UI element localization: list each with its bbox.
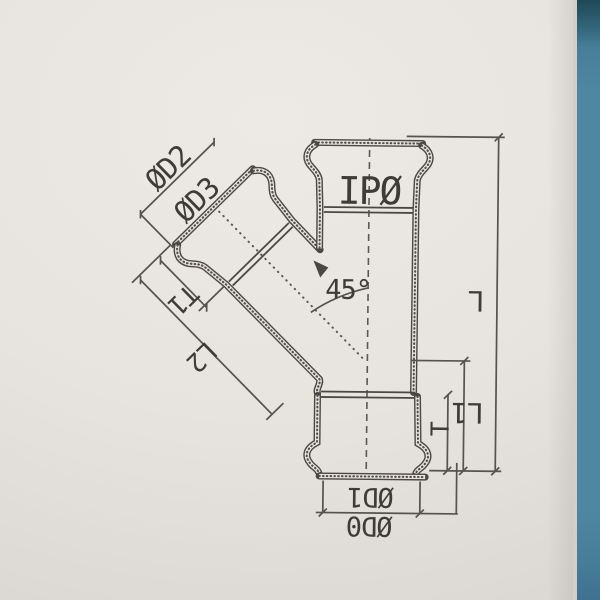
photo-of-drawing: ØD2 ØD3 T1 L2 45°: [0, 0, 600, 600]
label-overall-length: L: [467, 284, 484, 317]
label-bottom-socket-depth: T: [426, 421, 455, 436]
overall-length-line: [495, 137, 498, 471]
pipe-fitting-drawing: ØD2 ØD3 T1 L2 45°: [0, 0, 600, 600]
bottom-socket-shoulder: [317, 391, 419, 398]
bottom-extension-line: [429, 471, 501, 472]
label-bottom-inner-diameter: ØD1: [348, 481, 394, 512]
d2-extension-line: [140, 214, 173, 248]
label-branch-angle: 45°: [325, 275, 371, 306]
label-branch-socket-depth: T1: [162, 278, 204, 320]
main-wall-right: [414, 145, 431, 392]
label-lower-length: L1: [452, 396, 484, 429]
label-bottom-outer-diameter: ØD0: [347, 510, 393, 541]
top-socket-rim: [315, 142, 423, 143]
top-extension-line: [407, 136, 505, 137]
angle-annotation: 45°: [311, 260, 371, 313]
l1-extension-line: [411, 360, 470, 361]
d0-extension-line: [456, 463, 457, 514]
label-top-socket-diameter: IPØ: [338, 169, 403, 214]
label-branch-length: L2: [180, 335, 222, 377]
